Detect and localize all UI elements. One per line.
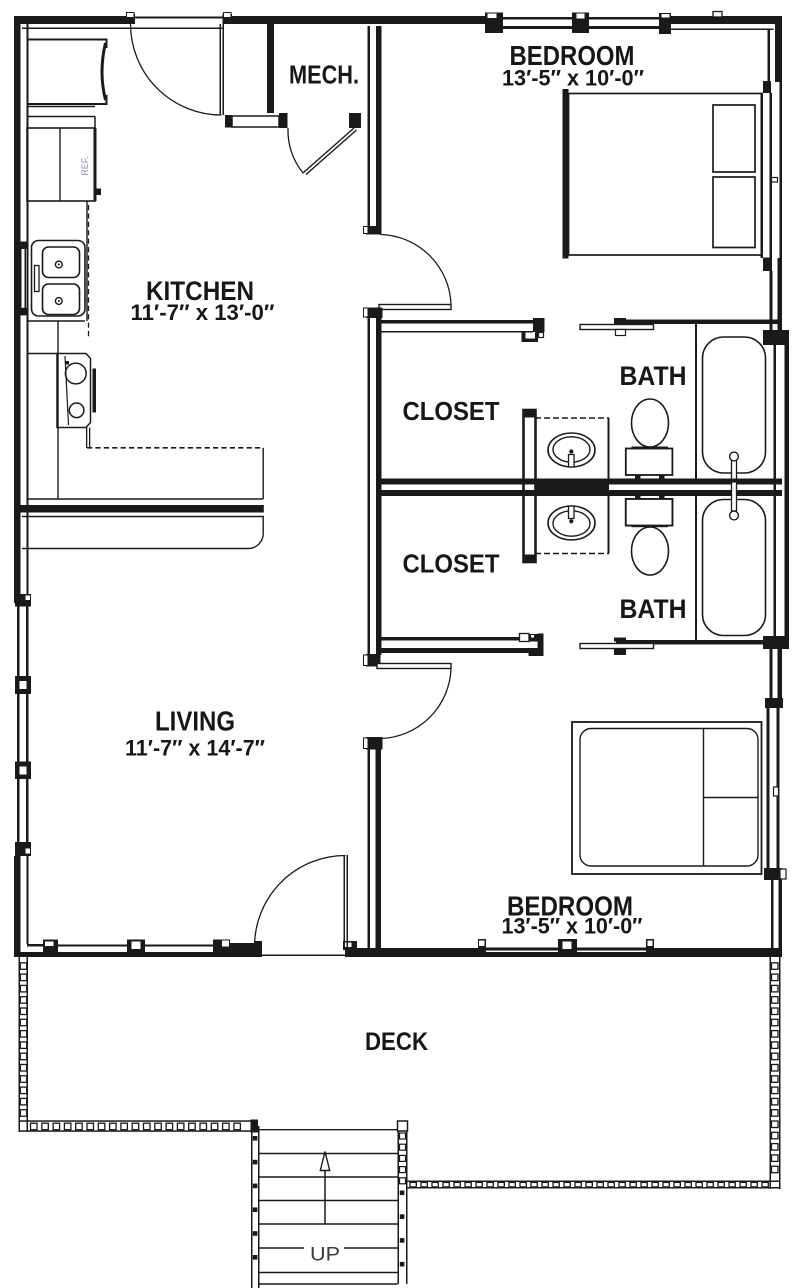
svg-text:LIVING: LIVING xyxy=(155,706,235,737)
svg-text:DECK: DECK xyxy=(365,1028,428,1056)
svg-text:CLOSET: CLOSET xyxy=(403,549,500,579)
svg-text:11′-7″ x 14′-7″: 11′-7″ x 14′-7″ xyxy=(125,736,265,761)
svg-text:13′-5″ x 10′-0″: 13′-5″ x 10′-0″ xyxy=(502,66,644,91)
svg-text:REF.: REF. xyxy=(80,156,90,176)
svg-text:CLOSET: CLOSET xyxy=(403,396,500,426)
svg-text:13′-5″ x 10′-0″: 13′-5″ x 10′-0″ xyxy=(502,914,643,939)
svg-text:BATH: BATH xyxy=(620,361,687,391)
svg-text:UP: UP xyxy=(310,1245,340,1266)
svg-text:BATH: BATH xyxy=(620,594,687,624)
svg-text:MECH.: MECH. xyxy=(289,60,359,90)
svg-text:11′-7″ x 13′-0″: 11′-7″ x 13′-0″ xyxy=(131,300,275,325)
